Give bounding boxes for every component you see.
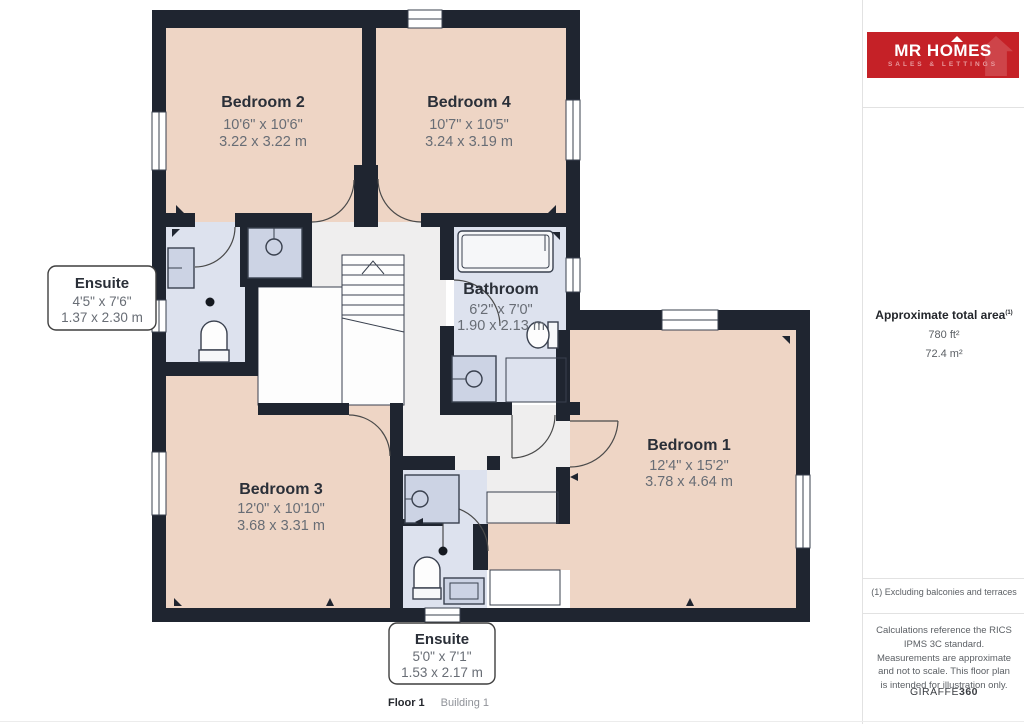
toilet-icon — [199, 321, 229, 362]
bedroom-3-imperial: 12'0" x 10'10" — [237, 501, 325, 517]
ensuite-top-callout: Ensuite 4'5" x 7'6" 1.37 x 2.30 m — [48, 266, 156, 330]
basin-icon — [168, 248, 194, 288]
toilet-icon — [413, 557, 441, 599]
bedroom-1-metric: 3.78 x 4.64 m — [645, 474, 733, 490]
window — [152, 452, 166, 515]
bedroom-4-metric: 3.24 x 3.19 m — [425, 134, 513, 150]
bedroom-3-label: Bedroom 3 — [239, 481, 323, 498]
bedroom-2-label: Bedroom 2 — [221, 94, 305, 111]
plan-footer: Floor 1Building 1 — [388, 697, 489, 709]
sidebar-divider — [863, 578, 1024, 579]
sidebar-divider — [863, 613, 1024, 614]
sidebar-divider — [863, 107, 1024, 108]
bathroom-label: Bathroom — [463, 281, 539, 298]
door-hinge-dot — [206, 298, 215, 307]
bathtub-icon — [458, 231, 553, 272]
sink-icon — [444, 578, 484, 604]
bedroom-4-label: Bedroom 4 — [427, 94, 511, 111]
ensuite-top-label: Ensuite — [75, 275, 129, 292]
sink-icon — [452, 356, 496, 402]
bedroom-2-metric: 3.22 x 3.22 m — [219, 134, 307, 150]
bathroom-metric: 1.90 x 2.13 m — [457, 318, 545, 334]
ensuite-bottom-label: Ensuite — [415, 631, 469, 648]
ensuite-bottom-callout: Ensuite 5'0" x 7'1" 1.53 x 2.17 m — [389, 623, 495, 684]
floorplan-page: Bedroom 2 10'6" x 10'6" 3.22 x 3.22 m Be… — [0, 0, 1024, 724]
agency-logo: MR HOMES SALES & LETTINGS — [867, 32, 1019, 78]
closet — [490, 570, 560, 605]
total-area-imperial: 780 ft² — [863, 329, 1024, 341]
window — [662, 310, 718, 330]
bedroom-2-imperial: 10'6" x 10'6" — [223, 117, 303, 133]
window — [425, 608, 460, 622]
window — [152, 112, 166, 170]
ensuite-top-metric: 1.37 x 2.30 m — [61, 310, 143, 325]
shower-icon — [405, 475, 459, 523]
window — [796, 475, 810, 548]
shower-icon — [248, 228, 302, 278]
bedroom-4-imperial: 10'7" x 10'5" — [429, 117, 509, 133]
bedroom-1-nook-floor — [488, 523, 570, 570]
total-area-title: Approximate total area(1) — [863, 308, 1024, 322]
page-bottom-rule — [0, 721, 1024, 722]
bedroom-1-imperial: 12'4" x 15'2" — [649, 458, 729, 474]
total-area-metric: 72.4 m² — [863, 348, 1024, 360]
info-sidebar: MR HOMES SALES & LETTINGS Approximate to… — [862, 0, 1024, 724]
area-footnote-ref: (1) — [1005, 310, 1012, 316]
total-area-block: Approximate total area(1) 780 ft² 72.4 m… — [863, 308, 1024, 360]
window — [408, 10, 442, 28]
building-label: Building 1 — [441, 697, 489, 709]
footnote-text: (1) Excluding balconies and terraces — [863, 587, 1024, 597]
window — [566, 100, 580, 160]
ensuite-bottom-metric: 1.53 x 2.17 m — [401, 665, 483, 680]
ensuite-top-imperial: 4'5" x 7'6" — [72, 294, 131, 309]
agency-tagline: SALES & LETTINGS — [867, 61, 1019, 68]
bedroom-3-metric: 3.68 x 3.31 m — [237, 518, 325, 534]
bedroom-1-label: Bedroom 1 — [647, 437, 731, 454]
giraffe360-credit: GIRAFFE360 — [863, 686, 1024, 698]
disclaimer-text: Calculations reference the RICS IPMS 3C … — [874, 624, 1014, 693]
bathroom-imperial: 6'2" x 7'0" — [469, 302, 532, 318]
floor-label: Floor 1 — [388, 697, 425, 709]
agency-brand: MR HOMES — [867, 41, 1019, 61]
window — [566, 258, 580, 292]
ensuite-bottom-imperial: 5'0" x 7'1" — [412, 649, 471, 664]
